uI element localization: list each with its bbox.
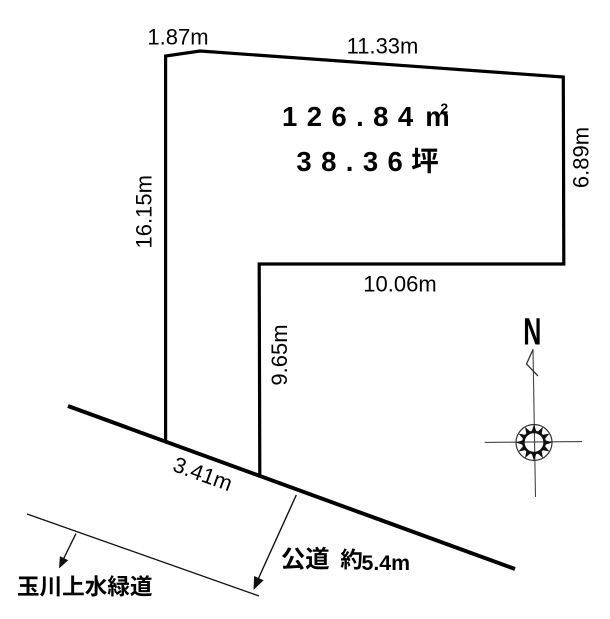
svg-text:3.41m: 3.41m (170, 452, 236, 496)
svg-text:N: N (523, 310, 541, 352)
svg-text:11.33m: 11.33m (347, 34, 419, 59)
svg-text:126.84: 126.84 (282, 101, 423, 132)
svg-text:1.87m: 1.87m (147, 25, 208, 50)
svg-text:6.89m: 6.89m (569, 127, 594, 188)
svg-text:2: 2 (440, 100, 448, 116)
svg-text:16.15m: 16.15m (132, 175, 157, 248)
svg-text:10.06m: 10.06m (363, 271, 436, 296)
svg-text:38.36: 38.36 (296, 146, 412, 177)
svg-text:5.4m: 5.4m (362, 551, 411, 575)
svg-text:9.65m: 9.65m (267, 324, 292, 385)
